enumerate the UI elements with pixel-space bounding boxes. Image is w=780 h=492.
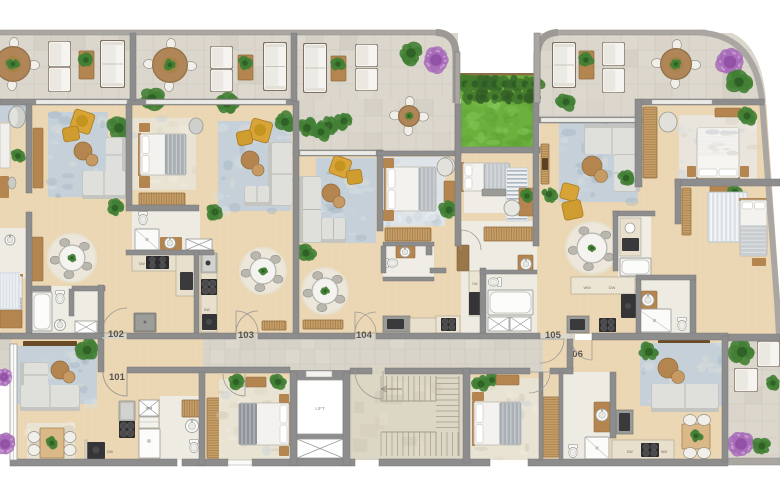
- svg-text:DW: DW: [107, 450, 114, 454]
- svg-text:WM: WM: [146, 407, 152, 411]
- svg-text:WM: WM: [661, 450, 667, 454]
- svg-text:103: 103: [238, 330, 254, 341]
- svg-text:102: 102: [108, 329, 124, 340]
- svg-text:WM: WM: [583, 285, 590, 290]
- svg-text:DW: DW: [627, 450, 633, 454]
- svg-text:LIFT: LIFT: [315, 406, 325, 411]
- svg-text:DW: DW: [472, 282, 477, 286]
- svg-text:DW: DW: [609, 285, 616, 290]
- svg-text:101: 101: [109, 372, 126, 383]
- svg-text:DW: DW: [204, 308, 210, 312]
- svg-text:104: 104: [356, 330, 373, 341]
- svg-text:DW: DW: [139, 262, 145, 266]
